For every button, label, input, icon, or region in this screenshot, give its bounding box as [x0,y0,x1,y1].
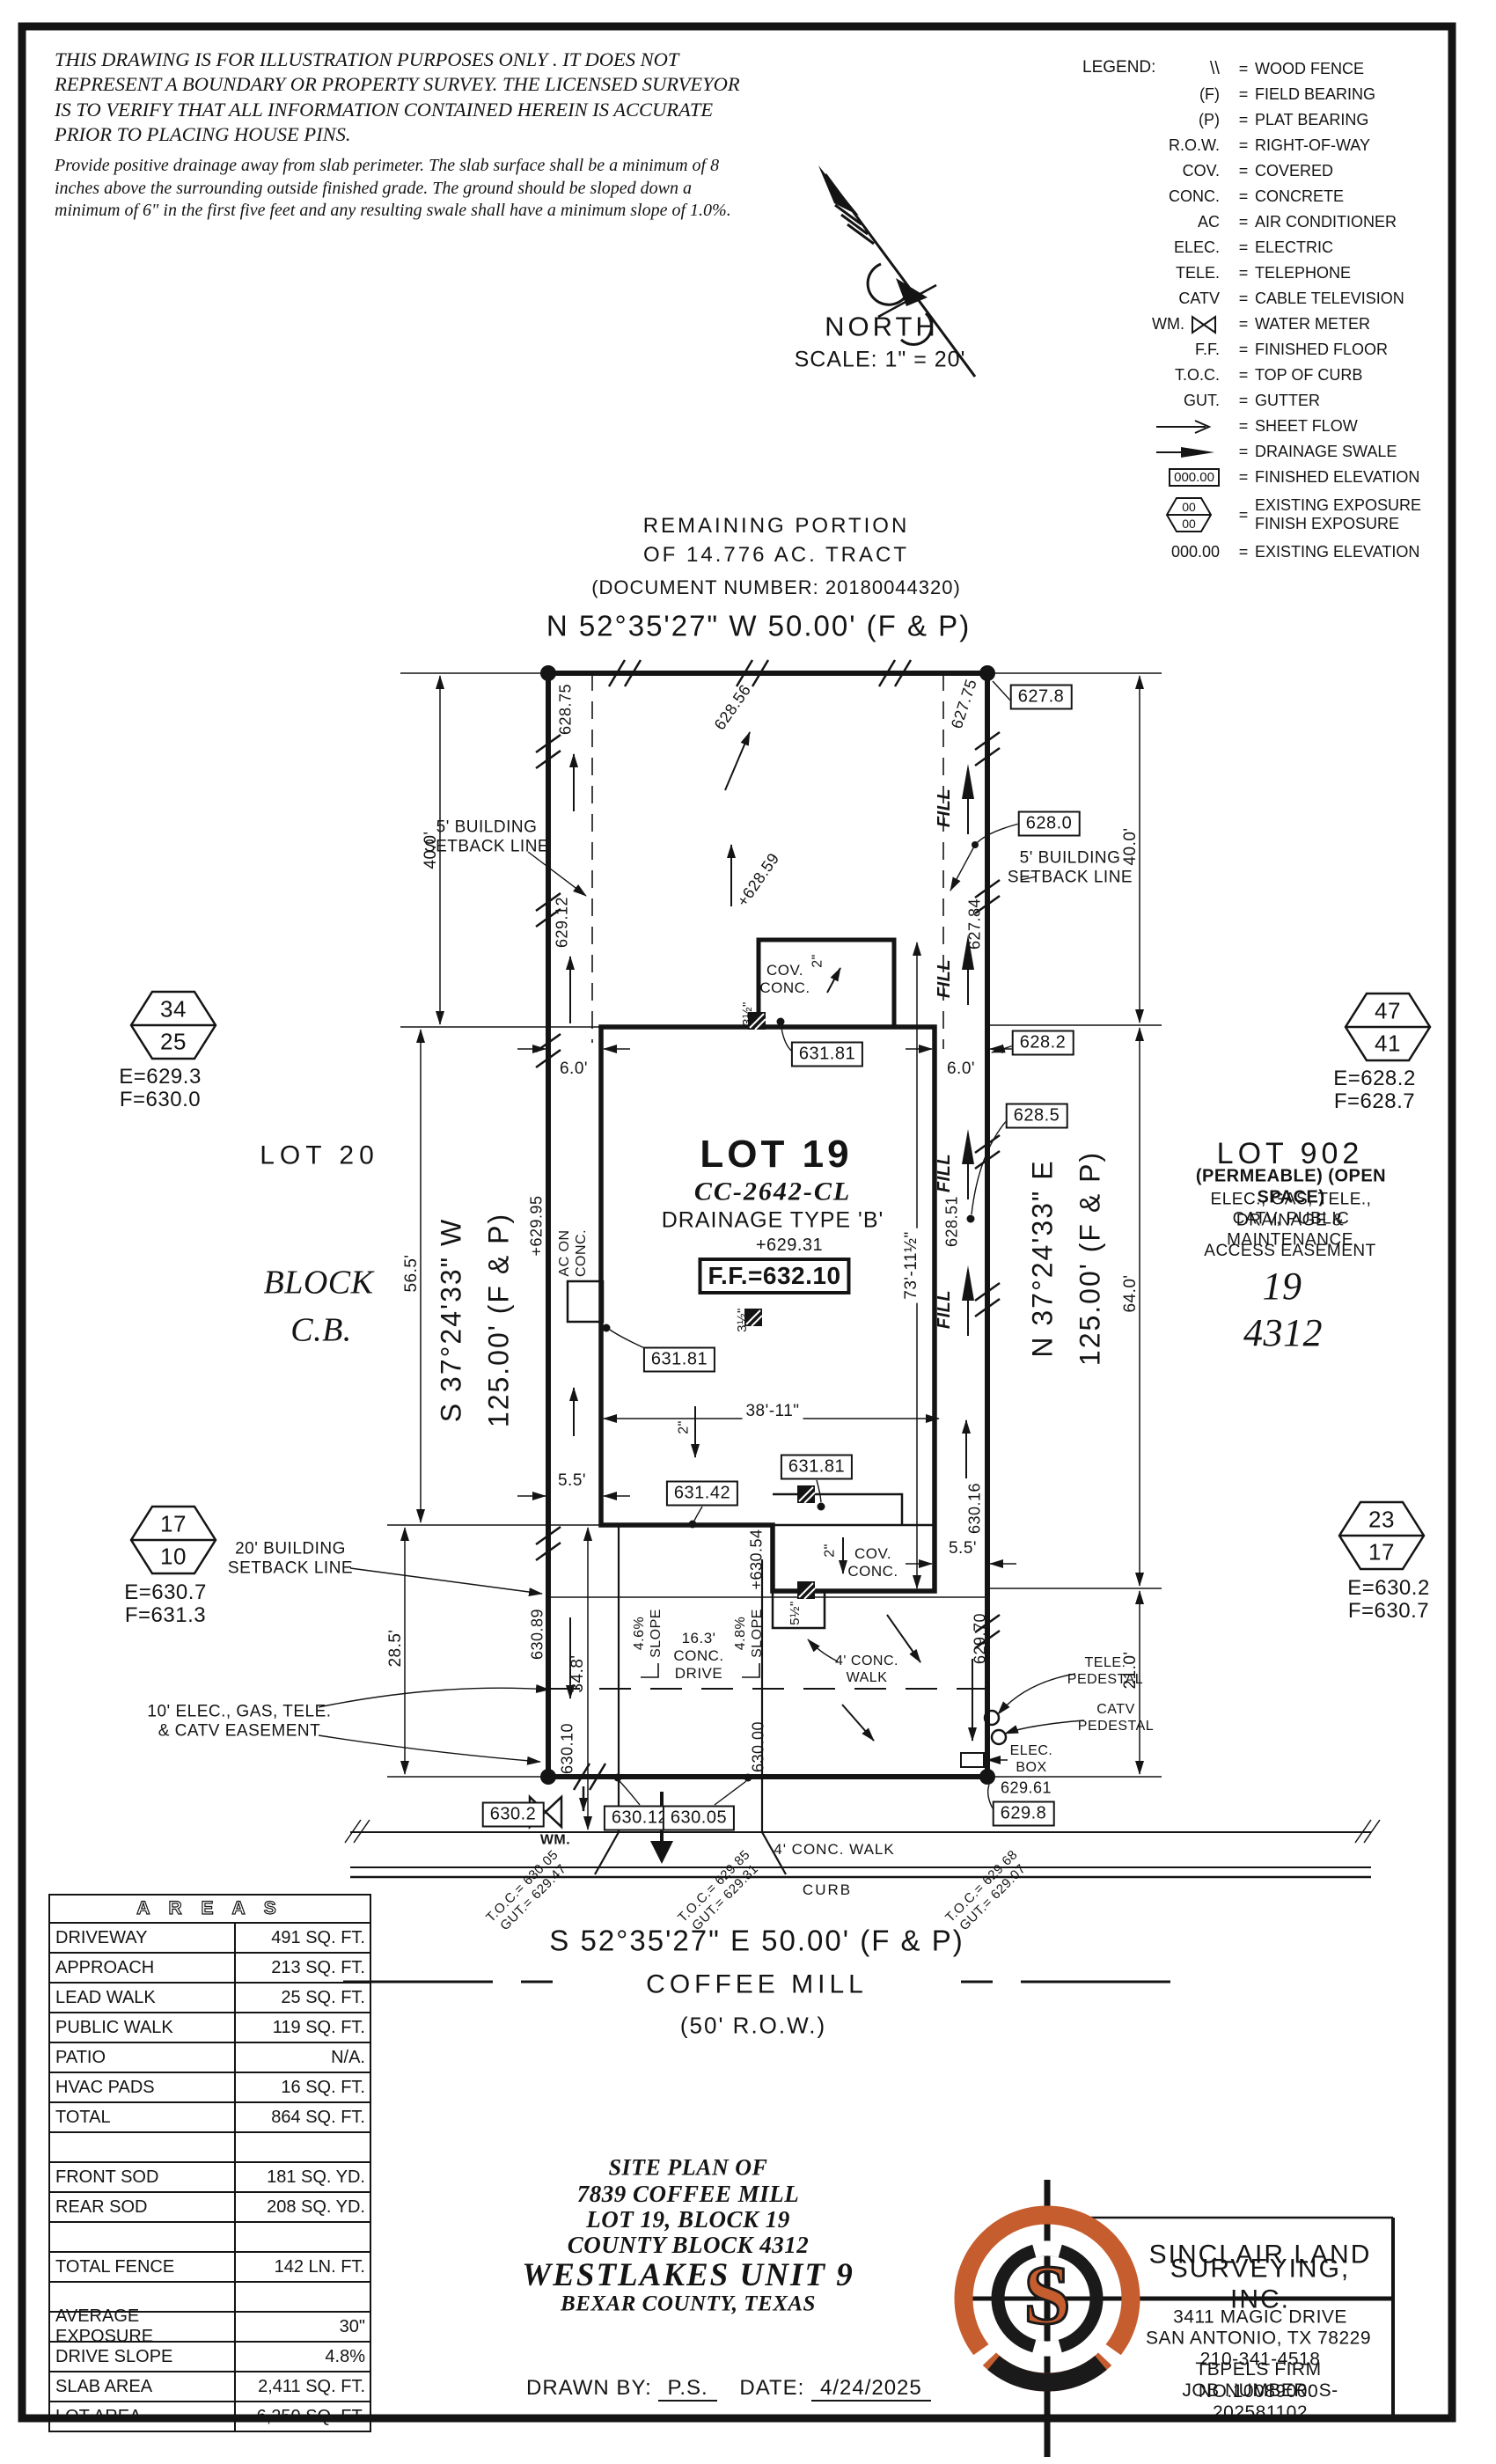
block19-label: 19 [1263,1264,1302,1309]
drawn-by-row: DRAWN BY: P.S. DATE: 4/24/2025 [526,2376,931,2401]
tract-line1: REMAINING PORTION [643,514,910,539]
exposure-hex-icon: 00 00 [1162,492,1220,538]
bearing-north: N 52°35'27" W 50.00' (F & P) [546,610,971,644]
hex2-existing: E=628.2 [1333,1067,1416,1091]
dim-40-right: 40.0' [1121,827,1140,865]
bearing-south: S 52°35'27" E 50.00' (F & P) [549,1925,964,1959]
street-name: COFFEE MILL [646,1969,868,1999]
legend-row: R.O.W. = RIGHT-OF-WAY [1081,133,1468,158]
covered-concrete-porch-label: COV. CONC. [847,1545,898,1580]
countyblock4312-label: 4312 [1243,1310,1323,1356]
legend-rows: \\ = WOOD FENCE (F) = FIELD BEARING (P) … [1081,56,1468,565]
dim-2-yard: 2" [677,1420,693,1434]
dim-565: 56.5' [402,1254,422,1292]
street-row: (50' R.O.W.) [680,2013,826,2040]
dim-house-width: 38'-11" [742,1402,803,1421]
table-row: DRIVEWAY 491 SQ. FT. [50,1924,370,1954]
table-row [50,2133,370,2163]
dim-2-patio: 2" [810,954,827,968]
dim-house-depth: 73'-11½" [902,1228,921,1302]
elev-628-0: 628.0 [1018,811,1081,837]
titleblock-line1: SITE PLAN OF [609,2155,768,2182]
hex1-finish: F=630.0 [120,1088,201,1112]
logo-letter: S [1023,2246,1070,2343]
hex3-top: 17 [160,1511,187,1538]
finished-floor-elevation: F.F.=632.10 [698,1258,850,1294]
setback5-left-label: 5' BUILDING SETBACK LINE [424,818,549,858]
lot-title: LOT 19 [700,1132,852,1177]
legend-row: 00 00 = EXISTING EXPOSURE FINISH EXPOSUR… [1081,490,1468,539]
legend-row: COV. = COVERED [1081,158,1468,184]
elev-631-81-west: 631.81 [643,1347,715,1373]
finished-elevation-symbol: 000.00 [1169,468,1220,487]
dim-21: 21.0' [1121,1651,1140,1689]
table-row: LEAD WALK 25 SQ. FT. [50,1984,370,2013]
dim-2-porch: 2" [823,1544,840,1558]
elec-box-label: ELEC. BOX [1010,1743,1053,1777]
hex1-bottom: 25 [160,1029,187,1056]
legend-row: \\ = WOOD FENCE [1081,56,1468,82]
setback5-right-label: 5' BUILDING SETBACK LINE [1008,849,1133,889]
dim-55-left: 5.5' [558,1471,586,1491]
table-row: REAR SOD 208 SQ. YD. [50,2193,370,2223]
hex2-bottom: 41 [1375,1030,1401,1058]
drive-slope-46-label: 4.6% SLOPE [632,1609,665,1658]
north-label: NORTH [825,312,939,344]
disclaimer-secondary: Provide positive drainage away from slab… [55,155,750,223]
spot-630-16: 630.16 [965,1483,984,1534]
spot-629-70: 629.70 [971,1613,989,1664]
legend-row: 000.00 = FINISHED ELEVATION [1081,465,1468,490]
tract-line2: OF 14.776 AC. TRACT [643,543,909,568]
setback20-label: 20' BUILDING SETBACK LINE [228,1540,353,1580]
legend-row: (F) = FIELD BEARING [1081,82,1468,107]
spot-630-54: +630.54 [747,1529,766,1589]
public-walk-label: 4' CONC. WALK [774,1841,894,1859]
table-row: PUBLIC WALK 119 SQ. FT. [50,2013,370,2043]
tract-doc: (DOCUMENT NUMBER: 20180044320) [591,576,961,599]
table-row: SLAB AREA 2,411 SQ. FT. [50,2372,370,2402]
legend-row: CATV = CABLE TELEVISION [1081,286,1468,312]
dim-6-right: 6.0' [947,1060,975,1079]
drawn-by-label: DRAWN BY: [526,2376,652,2400]
legend-row: (P) = PLAT BEARING [1081,107,1468,133]
wm-abbr: WM. [1152,315,1184,334]
hex4-bottom: 17 [1368,1539,1395,1566]
elev-631-42: 631.42 [666,1481,738,1507]
table-row: TOTAL FENCE 142 LN. FT. [50,2253,370,2283]
lot-plan-number: CC-2642-CL [694,1176,851,1206]
block-label: BLOCK [264,1264,374,1303]
company-address1: 3411 MAGIC DRIVE [1173,2307,1347,2329]
curb-label: CURB [803,1881,852,1899]
elev-627-8: 627.8 [1010,685,1073,710]
elev-630-2: 630.2 [482,1802,545,1828]
dim-post-patio: 3½" [740,1001,756,1026]
legend-row: = SHEET FLOW [1081,414,1468,439]
fill-label: FILL [935,1290,956,1329]
elev-630-05: 630.05 [663,1806,735,1831]
legend-row: T.O.C. = TOP OF CURB [1081,363,1468,388]
dim-6-left: 6.0' [560,1060,588,1079]
table-row: FRONT SOD 181 SQ. YD. [50,2163,370,2193]
legend-row: 000.00 = EXISTING ELEVATION [1081,539,1468,565]
legend-row: TELE. = TELEPHONE [1081,260,1468,286]
dim-post-mid: 3½" [735,1308,751,1332]
table-row: TOTAL 864 SQ. FT. [50,2103,370,2133]
covered-concrete-patio-label: COV. CONC. [759,962,810,997]
table-row [50,2223,370,2253]
dim-post-porch: 5½" [788,1601,803,1625]
hex3-finish: F=631.3 [125,1603,206,1628]
svg-text:00: 00 [1182,517,1196,531]
sheet-flow-icon [1155,418,1220,436]
elev-629-8: 629.8 [993,1801,1055,1827]
dim-55-right: 5.5' [949,1539,977,1558]
dim-348: 34.8' [568,1654,588,1692]
north-arrow-icon [818,165,975,377]
spot-628-51: 628.51 [942,1196,961,1247]
scale-label: SCALE: 1" = 20' [795,347,966,373]
hex4-existing: E=630.2 [1347,1576,1430,1601]
spot-630-00: 630.00 [749,1721,767,1772]
post-hatch-marks [744,1012,815,1599]
titleblock-line3: LOT 19, BLOCK 19 [586,2206,790,2234]
table-row: PATIO N/A. [50,2043,370,2073]
elev-631-81-patio: 631.81 [791,1042,863,1067]
water-meter-label: WM. [540,1833,570,1850]
lot902-easement3: ACCESS EASEMENT [1204,1242,1375,1261]
concrete-drive-label: 16.3' CONC. DRIVE [673,1630,723,1683]
hex3-existing: E=630.7 [124,1580,207,1605]
drive-slope-48-label: 4.8% SLOPE [733,1609,766,1658]
titleblock-line2: 7839 COFFEE MILL [577,2181,800,2209]
water-meter-icon [1190,314,1220,335]
lot20-label: LOT 20 [260,1140,379,1170]
catv-pedestal-icon [992,1730,1006,1744]
elev-628-2: 628.2 [1012,1030,1074,1056]
hex3-bottom: 10 [160,1544,187,1571]
date-label: DATE: [739,2376,804,2400]
spot-630-89: 630.89 [528,1609,546,1660]
dim-40-left: 40.0' [422,831,441,869]
table-row: LOT AREA 6,250 SQ. FT. [50,2402,370,2431]
fill-label: FILL [935,959,956,998]
bearing-east: N 37°24'33" E 125.00' (F & P) [1019,1151,1115,1366]
spot-630-10: 630.10 [558,1723,576,1774]
legend-row: AC = AIR CONDITIONER [1081,209,1468,235]
company-job-number: JOB NUMBER: S-202581102 [1142,2380,1378,2424]
date-value: 4/24/2025 [811,2376,931,2402]
block-cb-label: C.B. [290,1311,352,1351]
survey-sheet: THIS DRAWING IS FOR ILLUSTRATION PURPOSE… [0,0,1496,2464]
legend-row: = DRAINAGE SWALE [1081,439,1468,465]
legend-row: F.F. = FINISHED FLOOR [1081,337,1468,363]
titleblock-line5: WESTLAKES UNIT 9 [522,2256,854,2295]
hex4-finish: F=630.7 [1348,1599,1429,1624]
hex4-top: 23 [1368,1507,1395,1534]
easement10-label: 10' ELEC., GAS, TELE. & CATV EASEMENT [147,1703,331,1742]
table-row: APPROACH 213 SQ. FT. [50,1954,370,1984]
spot-629-95: +629.95 [527,1195,546,1256]
titleblock-line6: BEXAR COUNTY, TEXAS [561,2291,816,2317]
spot-627-84: 627.84 [965,898,984,950]
legend-row: WM. = WATER METER [1081,312,1468,337]
areas-title: A R E A S [50,1896,370,1924]
lot-drainage-type: DRAINAGE TYPE 'B' [662,1207,884,1234]
fill-label: FILL [935,1154,956,1192]
drawn-by-value: P.S. [658,2376,716,2402]
legend-row: ELEC. = ELECTRIC [1081,235,1468,260]
spot-628-75: 628.75 [556,684,575,735]
catv-pedestal-label: CATV PEDESTAL [1078,1702,1154,1735]
svg-text:00: 00 [1182,500,1196,514]
hex1-top: 34 [160,996,187,1023]
areas-table: A R E A S DRIVEWAY 491 SQ. FT. APPROACH … [48,1894,371,2432]
elev-631-81-entry: 631.81 [781,1455,853,1480]
hex2-top: 47 [1375,998,1401,1025]
table-row: AVERAGE EXPOSURE 30" [50,2313,370,2343]
elev-628-5: 628.5 [1006,1104,1068,1129]
bearing-west: S 37°24'33" W 125.00' (F & P) [428,1213,524,1427]
spot-629-12: 629.12 [553,897,571,948]
titleblock-line4: COUNTY BLOCK 4312 [568,2232,810,2260]
lot-spot-elevation: +629.31 [756,1236,823,1257]
dim-285: 28.5' [386,1629,406,1667]
drainage-swale-icon [1155,444,1220,461]
lead-walk-label: 4' CONC. WALK [835,1654,898,1687]
elec-box-icon [961,1753,984,1767]
hex2-finish: F=628.7 [1334,1089,1415,1114]
dim-64: 64.0' [1121,1274,1140,1312]
hex1-existing: E=629.3 [119,1065,202,1089]
fill-label: FILL [935,788,956,827]
ac-pad-label: AC ON CONC. [557,1229,590,1277]
company-address2: SAN ANTONIO, TX 78229 [1146,2328,1371,2350]
legend-row: CONC. = CONCRETE [1081,184,1468,209]
table-row: DRIVE SLOPE 4.8% [50,2343,370,2372]
spot-629-61: 629.61 [1001,1778,1052,1797]
legend-row: GUT. = GUTTER [1081,388,1468,414]
table-row: HVAC PADS 16 SQ. FT. [50,2073,370,2103]
disclaimer-primary: THIS DRAWING IS FOR ILLUSTRATION PURPOSE… [55,48,741,147]
